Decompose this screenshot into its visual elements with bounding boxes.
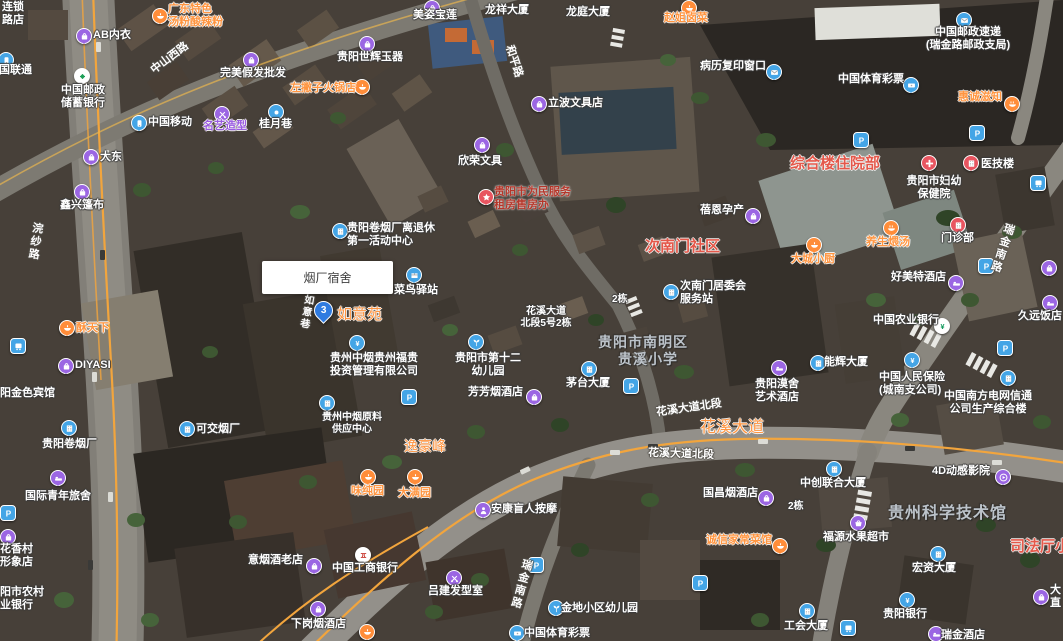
shihui-jade-icon[interactable] xyxy=(359,36,375,52)
yi-tobacco-shop-label[interactable]: 意烟酒老店 xyxy=(248,554,303,567)
jiuyuan-restaurant-icon[interactable] xyxy=(1042,295,1058,311)
haomeite-hotel-icon[interactable] xyxy=(948,275,964,291)
china-mobile-icon[interactable] xyxy=(131,115,147,131)
aoi-yihaofeng: 逸豪峰 xyxy=(404,438,446,455)
dazhi-partial-label[interactable]: 大直 xyxy=(1050,584,1061,610)
satellite-map[interactable]: 连锁路店广东特色汤粉酸辣粉AB内衣中国联通中国邮政储蓄银行完美假发批发左撇子火锅… xyxy=(0,0,1063,641)
beien-maternity-icon[interactable] xyxy=(745,208,761,224)
sports-lottery-north-icon[interactable] xyxy=(903,77,919,93)
china-post-ems-label[interactable]: 中国邮政速递(瑞金路邮政支局) xyxy=(926,26,1010,52)
kejiao-factory-icon[interactable] xyxy=(179,421,195,437)
selected-place-name: 烟厂宿舍 xyxy=(303,269,351,286)
fuyuan-fruit-label[interactable]: 福源水果超市 xyxy=(823,531,889,544)
parking-5-icon[interactable]: P xyxy=(401,389,417,405)
yiji-building-label[interactable]: 医技楼 xyxy=(981,158,1014,171)
chain-store-partial-label[interactable]: 连锁路店 xyxy=(2,1,24,27)
southern-grid-label[interactable]: 中国南方电网信通公司生产综合楼 xyxy=(944,390,1032,416)
zhongyan-invest-label[interactable]: 贵州中烟贵州福贵投资管理有限公司 xyxy=(330,352,418,378)
guiyang-bank-icon[interactable]: ¥ xyxy=(899,592,915,608)
dacheng-kitchen-icon[interactable] xyxy=(806,237,822,253)
golden-hotel-partial-label[interactable]: 阳金色宾馆 xyxy=(0,387,55,400)
zuopiezi-hotpot-label[interactable]: 左撇子火锅店 xyxy=(290,82,356,95)
haomeite-hotel-label[interactable]: 好美特酒店 xyxy=(891,271,946,284)
ab-underwear-label[interactable]: AB内衣 xyxy=(93,29,131,42)
jindi-kindergarten-label[interactable]: 金地小区幼儿园 xyxy=(561,602,638,615)
beien-maternity-label[interactable]: 蓓恩孕产 xyxy=(700,204,744,217)
psbc-bank-label[interactable]: 中国邮政储蓄银行 xyxy=(61,84,105,110)
4d-cinema-icon[interactable] xyxy=(995,469,1011,485)
ankang-massage-icon[interactable] xyxy=(475,502,491,518)
cinanmen-committee-icon[interactable] xyxy=(663,284,679,300)
fuyuan-fruit-icon[interactable] xyxy=(850,515,866,531)
huaxiangcun-store-label[interactable]: 花香村形象店 xyxy=(0,543,33,569)
route-marker-3-label: 3 xyxy=(321,305,327,316)
road-label-如意巷: 如意巷 xyxy=(296,293,314,331)
sports-lottery-south-label[interactable]: 中国体育彩票 xyxy=(524,627,590,640)
building-2dong-b-label[interactable]: 2栋 xyxy=(788,501,804,513)
hongzi-tower-icon[interactable] xyxy=(930,546,946,562)
ankang-massage-label[interactable]: 安康盲人按摩 xyxy=(491,503,557,516)
guiyue-lane-label[interactable]: 桂月巷 xyxy=(259,118,292,131)
diyasi-label[interactable]: DIYASI xyxy=(75,359,111,372)
yangsheng-soup-label[interactable]: 养生煨汤 xyxy=(866,236,910,249)
road-label-瑞金南路: 瑞金南路 xyxy=(507,557,533,611)
parking-2-icon[interactable]: P xyxy=(853,132,869,148)
xiagang-tobacco-icon[interactable] xyxy=(310,601,326,617)
abc-bank-label[interactable]: 中国农业银行 xyxy=(873,314,939,327)
xinxing-tarpaulin-icon[interactable] xyxy=(74,184,90,200)
zhongyan-invest-icon[interactable]: ¥ xyxy=(349,335,365,351)
libo-stationery-label[interactable]: 立波文具店 xyxy=(548,97,603,110)
huicheng-zizhi-label[interactable]: 惠诚滋知 xyxy=(958,91,1002,104)
kindergarten-no12-icon[interactable] xyxy=(468,334,484,350)
mingyi-styling-label[interactable]: 名艺造型 xyxy=(203,120,247,133)
svg-text:¥: ¥ xyxy=(905,596,909,605)
road-label-浣纱路: 浣纱路 xyxy=(25,221,43,261)
orange-poi-icon[interactable] xyxy=(354,79,370,95)
svg-text:¥: ¥ xyxy=(910,356,914,365)
aoi-guixi-school: 贵阳市南明区贵溪小学 xyxy=(598,334,688,367)
medical-record-copy-icon[interactable] xyxy=(766,64,782,80)
svg-text:P: P xyxy=(858,136,864,144)
bus-stop-3-icon[interactable] xyxy=(10,338,26,354)
zhongchuang-tower-label[interactable]: 中创联合大厦 xyxy=(800,477,866,490)
parking-9-icon[interactable]: P xyxy=(692,575,708,591)
guangdong-noodle-label[interactable]: 广东特色汤粉酸辣粉 xyxy=(168,3,223,29)
fuyou-hospital-label[interactable]: 贵阳市妇幼保健院 xyxy=(907,175,962,201)
purple-poi-icon[interactable] xyxy=(1041,260,1057,276)
svg-text:P: P xyxy=(974,129,980,137)
road-label-花溪大道北段: 花溪大道北段 xyxy=(648,447,714,462)
sports-lottery-north-label[interactable]: 中国体育彩票 xyxy=(838,73,904,86)
building-2dong-a-label[interactable]: 2栋 xyxy=(612,294,628,306)
guochang-tobacco-icon[interactable] xyxy=(758,490,774,506)
icbc-bank-label[interactable]: 中国工商银行 xyxy=(332,562,398,575)
longxiang-tower-label[interactable]: 龙祥大厦 xyxy=(485,4,529,17)
poi-layer: 连锁路店广东特色汤粉酸辣粉AB内衣中国联通中国邮政储蓄银行完美假发批发左撇子火锅… xyxy=(0,0,1063,641)
aoi-huaxi-avenue: 花溪大道 xyxy=(700,419,764,438)
zhaojie-braised-label[interactable]: 赵姐卤菜 xyxy=(664,12,708,25)
medical-record-copy-label[interactable]: 病历复印窗口 xyxy=(700,60,766,73)
road-label-花溪大道北段: 花溪大道北段 xyxy=(655,397,722,419)
fangfang-tobacco-label[interactable]: 芳芳烟酒店 xyxy=(468,386,523,399)
cainiao-station-icon[interactable] xyxy=(406,267,422,283)
jiuyuan-restaurant-label[interactable]: 久远饭店 xyxy=(1018,310,1062,323)
china-mobile-label[interactable]: 中国移动 xyxy=(148,116,192,129)
libo-stationery-icon[interactable] xyxy=(531,96,547,112)
menzhenbu-label[interactable]: 门诊部 xyxy=(941,232,974,245)
damanyuan-icon[interactable] xyxy=(407,469,423,485)
kejiao-factory-label[interactable]: 可交烟厂 xyxy=(196,423,240,436)
lvjian-salon-icon[interactable] xyxy=(446,570,462,586)
maotai-tower-label[interactable]: 茅台大厦 xyxy=(566,377,610,390)
cainiao-station-label[interactable]: 菜鸟驿站 xyxy=(394,284,438,297)
aoi-sifating: 司法厅小 xyxy=(1010,538,1063,556)
huicheng-zizhi-icon[interactable] xyxy=(1004,96,1020,112)
dadong-label[interactable]: 大东 xyxy=(100,151,122,164)
parking-4-icon[interactable]: P xyxy=(997,340,1013,356)
road-label-中山西路: 中山西路 xyxy=(149,40,192,77)
weimin-service-icon[interactable] xyxy=(478,189,494,205)
dazhi-partial-icon[interactable] xyxy=(1033,589,1049,605)
svg-text:P: P xyxy=(697,579,703,587)
weichunyuan-icon[interactable] xyxy=(360,469,376,485)
dacheng-kitchen-label[interactable]: 大城小厨 xyxy=(791,253,835,266)
bus-stop-2-icon[interactable] xyxy=(840,620,856,636)
zhongyan-material-label[interactable]: 贵州中烟原料供应中心 xyxy=(322,412,382,436)
guochang-tobacco-label[interactable]: 国昌烟酒店 xyxy=(703,487,758,500)
tobacco-activity-center-label[interactable]: 贵阳卷烟厂离退休第一活动中心 xyxy=(347,222,435,248)
parking-7-icon[interactable]: P xyxy=(0,505,16,521)
huaxi-5-2-building-label[interactable]: 花溪大道北段5号2栋 xyxy=(520,306,571,330)
weimin-service-label[interactable]: 贵阳市为民服务租房售房办 xyxy=(494,186,571,212)
picc-insurance-icon[interactable]: ¥ xyxy=(904,352,920,368)
svg-text:P: P xyxy=(628,382,634,390)
longting-tower-label[interactable]: 龙庭大厦 xyxy=(566,6,610,19)
road-label-瑞金南路: 瑞金南路 xyxy=(987,221,1015,274)
4d-cinema-label[interactable]: 4D动感影院 xyxy=(932,465,990,478)
wig-wholesale-icon[interactable] xyxy=(243,52,259,68)
yiji-building-icon[interactable] xyxy=(963,155,979,171)
chengxin-restaurant-label[interactable]: 诚信家常菜馆 xyxy=(706,534,772,547)
xinrong-stationery-label[interactable]: 欣荣文具 xyxy=(458,155,502,168)
svg-text:P: P xyxy=(5,509,11,517)
youth-hostel-icon[interactable] xyxy=(50,470,66,486)
icbc-bank-icon[interactable] xyxy=(355,547,371,563)
shihui-jade-label[interactable]: 贵阳世辉玉器 xyxy=(337,51,403,64)
kindergarten-no12-label[interactable]: 贵阳市第十二幼儿园 xyxy=(455,352,521,378)
ruijin-hotel-label[interactable]: 瑞金酒店 xyxy=(941,629,985,641)
road-label-和平路: 和平路 xyxy=(502,44,525,79)
bus-stop-1-icon[interactable] xyxy=(1030,175,1046,191)
svg-text:¥: ¥ xyxy=(940,322,944,331)
mosha-art-hotel-label[interactable]: 贵阳漠舍艺术酒店 xyxy=(755,378,799,404)
xinrong-stationery-icon[interactable] xyxy=(474,137,490,153)
ab-underwear-icon[interactable] xyxy=(76,28,92,44)
damanyuan-label[interactable]: 大满园 xyxy=(398,487,431,500)
diyasi-icon[interactable] xyxy=(58,358,74,374)
rural-bank-partial-label[interactable]: 阳市农村业银行 xyxy=(0,586,44,612)
gonghui-tower-label[interactable]: 工会大厦 xyxy=(784,620,828,633)
yi-tobacco-shop-icon[interactable] xyxy=(306,558,322,574)
aoi-zonghelou: 综合楼住院部 xyxy=(790,155,880,173)
parking-1-icon[interactable]: P xyxy=(969,125,985,141)
sports-lottery-south-icon[interactable] xyxy=(509,625,525,641)
hongzi-tower-label[interactable]: 宏资大厦 xyxy=(912,562,956,575)
cigarette-factory-label[interactable]: 贵阳卷烟厂 xyxy=(42,438,97,451)
meizi-baolian-label[interactable]: 美姿宝莲 xyxy=(413,9,457,22)
picc-insurance-label[interactable]: 中国人民保险(城南支公司) xyxy=(879,371,945,397)
xinxing-tarpaulin-label[interactable]: 鑫兴篷布 xyxy=(60,199,104,212)
yangsheng-soup-icon[interactable] xyxy=(883,220,899,236)
fangfang-tobacco-icon[interactable] xyxy=(526,389,542,405)
cigarette-factory-icon[interactable] xyxy=(61,420,77,436)
parking-6-icon[interactable]: P xyxy=(623,378,639,394)
nenghui-tower-label[interactable]: 能辉大厦 xyxy=(824,356,868,369)
cinanmen-committee-label[interactable]: 次南门居委会服务站 xyxy=(680,280,746,306)
zhongchuang-tower-icon[interactable] xyxy=(826,461,842,477)
gonghui-tower-icon[interactable] xyxy=(799,603,815,619)
psbc-bank-icon[interactable] xyxy=(74,68,90,84)
guiyang-bank-label[interactable]: 贵阳银行 xyxy=(883,608,927,621)
svg-text:¥: ¥ xyxy=(355,339,359,348)
svg-text:P: P xyxy=(1002,344,1008,352)
maotai-tower-icon[interactable] xyxy=(581,361,597,377)
sutianxia-icon[interactable] xyxy=(59,320,75,336)
guangdong-noodle-icon[interactable] xyxy=(152,8,168,24)
aoi-ruyiyuan: 如意苑 xyxy=(337,306,382,324)
svg-text:P: P xyxy=(533,561,539,569)
wig-wholesale-label[interactable]: 完美假发批发 xyxy=(220,67,286,80)
aoi-cinanmen-shequ: 次南门社区 xyxy=(645,238,720,256)
dadong-icon[interactable] xyxy=(83,149,99,165)
chengxin-restaurant-icon[interactable] xyxy=(772,538,788,554)
weichunyuan-label[interactable]: 味纯园 xyxy=(351,485,384,498)
fuyou-hospital-icon[interactable] xyxy=(921,155,937,171)
southern-grid-icon[interactable] xyxy=(1000,370,1016,386)
mosha-art-hotel-icon[interactable] xyxy=(771,360,787,376)
zhongyan-material-icon[interactable] xyxy=(319,395,335,411)
sutianxia-label[interactable]: 酥天下 xyxy=(76,322,109,335)
tobacco-activity-center-icon[interactable] xyxy=(332,223,348,239)
xiagang-tobacco-label[interactable]: 下岗烟酒店 xyxy=(291,618,346,631)
lvjian-salon-label[interactable]: 吕建发型室 xyxy=(428,585,483,598)
menzhenbu-icon[interactable] xyxy=(950,217,966,233)
aoi-science-museum: 贵州科学技术馆 xyxy=(888,505,1007,524)
svg-text:P: P xyxy=(406,393,412,401)
selected-place-info-box[interactable]: 烟厂宿舍 xyxy=(262,261,393,294)
orange-deco-poi-icon[interactable] xyxy=(359,624,375,640)
china-unicom-label[interactable]: 中国联通 xyxy=(0,64,32,77)
youth-hostel-label[interactable]: 国际青年旅舍 xyxy=(25,490,91,503)
